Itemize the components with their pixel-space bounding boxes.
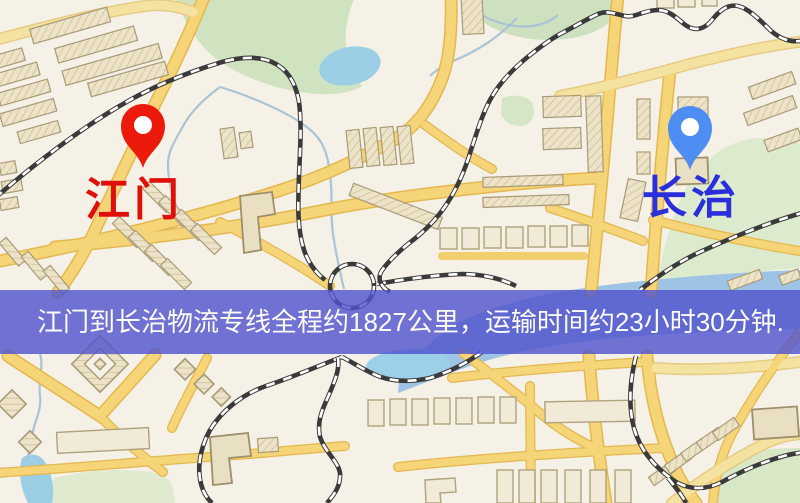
route-info-text: 江门到长治物流专线全程约1827公里，运输时间约23小时30分钟. — [0, 290, 800, 354]
logistics-route-map: 江门 长治 江门到长治物流专线全程约1827公里，运输时间约23小时30分钟. — [0, 0, 800, 503]
origin-city-label: 江门 — [85, 177, 183, 222]
destination-city-label: 长治 — [642, 175, 740, 220]
route-info-banner: 江门到长治物流专线全程约1827公里，运输时间约23小时30分钟. — [0, 290, 800, 354]
map-canvas — [0, 0, 800, 503]
